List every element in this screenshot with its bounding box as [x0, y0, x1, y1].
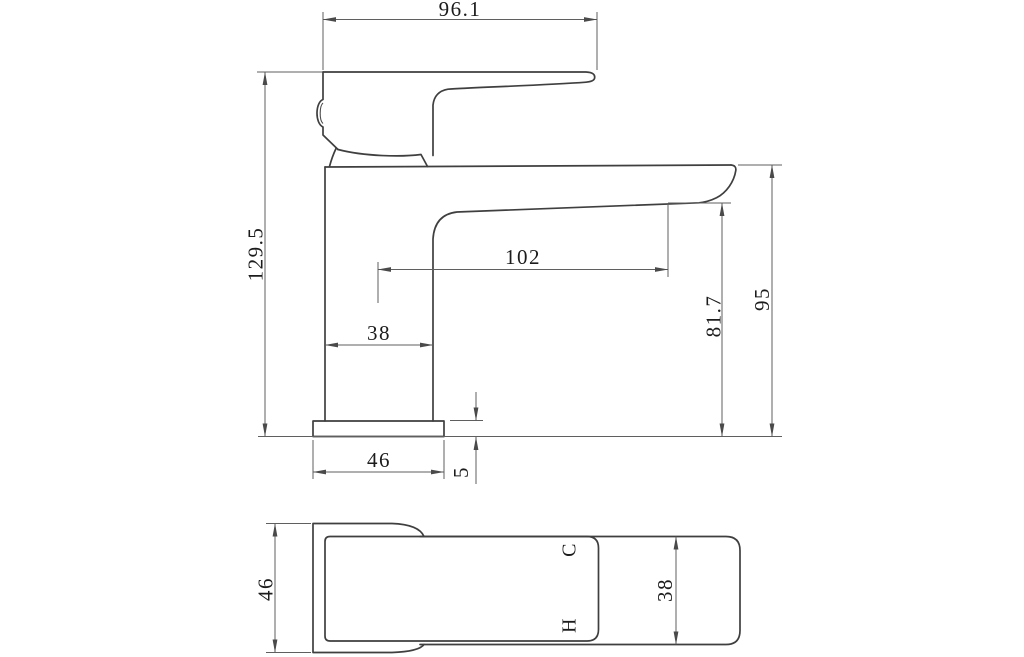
handle-cover-top-view [325, 537, 599, 642]
dim-base-width: 46 [313, 440, 444, 479]
handle-collar-bottom [338, 150, 428, 167]
hot-indicator-label: H [559, 618, 581, 633]
base-top-view [313, 524, 424, 653]
drawing-canvas: 96.1 129.5 102 38 46 [0, 0, 1024, 657]
dim-label-base-plate-height: 5 [449, 466, 473, 478]
dim-spout-reach: 102 [378, 203, 668, 303]
dim-spout-top-height: 95 [738, 165, 782, 437]
handle-lever-outline [323, 72, 595, 156]
dim-label-body-width: 38 [367, 321, 391, 345]
dim-label-overall-height: 129.5 [244, 227, 268, 282]
dim-label-base-depth: 46 [254, 577, 278, 601]
dim-spout-width: 38 [653, 537, 677, 645]
dim-handle-length: 96.1 [323, 0, 597, 70]
cold-indicator-label: C [559, 543, 581, 557]
dim-label-spout-width: 38 [653, 578, 677, 602]
dim-label-spout-top-height: 95 [750, 287, 774, 311]
handle-collar-skirt [330, 149, 337, 167]
side-view: 96.1 129.5 102 38 46 [244, 0, 783, 484]
dim-outlet-height: 81.7 [668, 203, 731, 437]
faucet-technical-drawing: 96.1 129.5 102 38 46 [0, 0, 1024, 657]
top-view: C H 46 38 [254, 524, 741, 653]
pin-bump-inner-arc [320, 103, 323, 124]
dim-label-outlet-height: 81.7 [702, 295, 726, 338]
dim-base-depth: 46 [254, 524, 312, 653]
dim-label-spout-reach: 102 [505, 245, 541, 269]
spout-top-edge [325, 165, 731, 167]
dim-base-plate-height: 5 [449, 392, 483, 484]
dim-label-handle-length: 96.1 [439, 0, 482, 21]
dim-body-width: 38 [325, 321, 433, 345]
base-plate [313, 421, 444, 437]
dim-label-base-width: 46 [367, 448, 391, 472]
